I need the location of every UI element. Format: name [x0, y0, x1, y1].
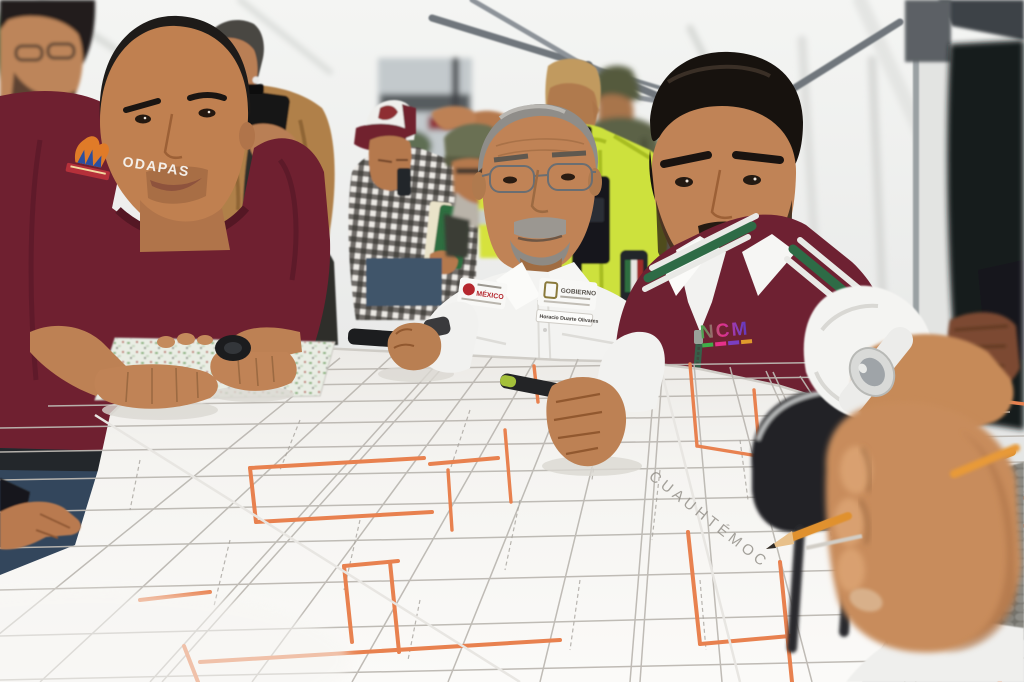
pocket-phone: [397, 168, 411, 196]
gray-mustache: [514, 217, 566, 238]
press-photo: MÉXICO GOBIERNO Horacio Duarte Olivares …: [0, 0, 1024, 682]
jeans: [366, 258, 442, 306]
gobierno-badge: GOBIERNO Horacio Duarte Olivares: [536, 278, 602, 327]
photo-scene: MÉXICO GOBIERNO Horacio Duarte Olivares …: [0, 0, 1024, 682]
ncm-logo: NCM: [699, 318, 752, 347]
svg-text:NCM: NCM: [699, 318, 750, 343]
